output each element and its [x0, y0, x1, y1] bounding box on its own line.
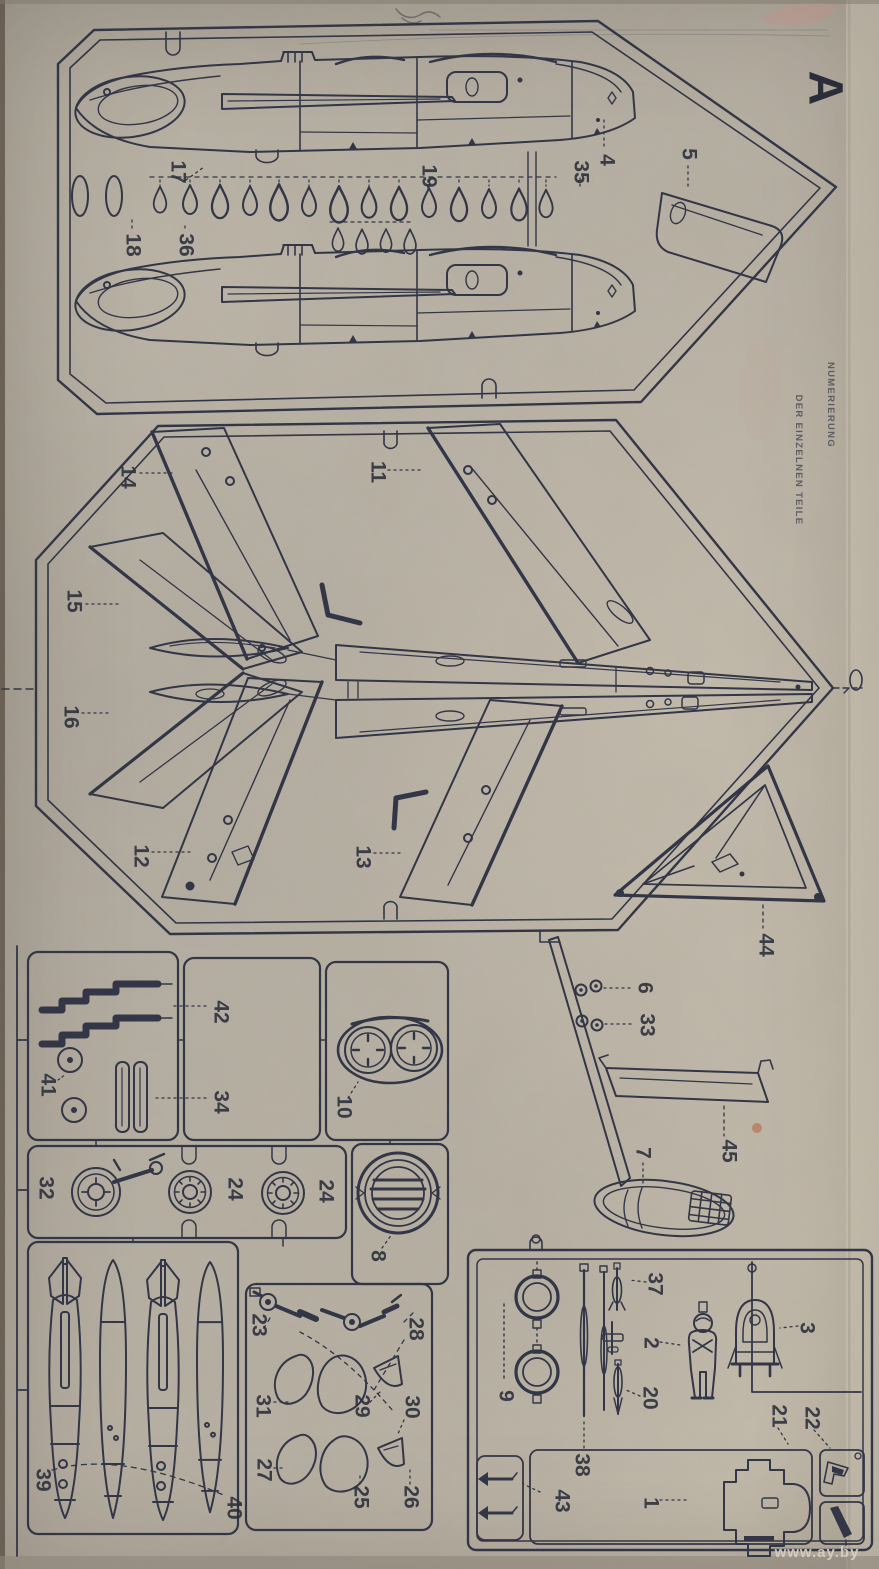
bottom-edge-shadow — [0, 1556, 879, 1569]
part-label-24-23: 24 — [223, 1177, 246, 1201]
part-label-42-18: 42 — [209, 1000, 232, 1023]
part-label-13-12: 13 — [351, 845, 374, 868]
part-label-33-15: 33 — [635, 1013, 658, 1036]
part-label-34-19: 34 — [209, 1090, 232, 1114]
faint-stain — [740, 340, 780, 440]
sheet-letter: A — [798, 71, 851, 106]
part-label-31-30: 31 — [251, 1394, 274, 1418]
part-label-26-35: 26 — [399, 1485, 422, 1508]
rust-stain — [752, 1123, 762, 1133]
part-label-19-1: 19 — [417, 164, 440, 187]
part-label-38-43: 38 — [570, 1453, 593, 1477]
part-label-27-33: 27 — [252, 1458, 275, 1481]
part-label-4-3: 4 — [595, 154, 618, 166]
part-label-6-14: 6 — [633, 982, 656, 994]
part-label-16-10: 16 — [59, 705, 82, 728]
left-edge-shadow — [0, 0, 5, 1569]
caption-line-2: DER EINZELNEN TEILE — [793, 395, 804, 526]
part-label-24-24: 24 — [314, 1179, 337, 1203]
part-label-5-6: 5 — [677, 148, 700, 160]
part-label-37-37: 37 — [643, 1272, 666, 1295]
part-label-7-17: 7 — [631, 1147, 654, 1159]
part-label-2-38: 2 — [639, 1337, 662, 1349]
scanned-instruction-sheet: A NUMERIERUNG DER EINZELNEN TEILE www.ay… — [0, 0, 879, 1569]
part-label-29-31: 29 — [350, 1394, 373, 1417]
caption-line-1: NUMERIERUNG — [825, 362, 836, 448]
part-label-15-9: 15 — [62, 589, 85, 613]
part-label-9-36: 9 — [494, 1390, 517, 1402]
part-label-3-40: 3 — [795, 1322, 818, 1334]
part-label-22-42: 22 — [800, 1406, 823, 1429]
part-label-41-20: 41 — [36, 1073, 59, 1097]
part-label-14-7: 14 — [116, 465, 139, 489]
part-label-44-13: 44 — [754, 933, 777, 957]
part-label-25-34: 25 — [349, 1485, 372, 1509]
part-label-8-25: 8 — [366, 1250, 389, 1262]
part-label-36-4: 36 — [174, 233, 197, 256]
part-label-1-45: 1 — [639, 1497, 662, 1509]
part-label-28-29: 28 — [404, 1317, 427, 1341]
part-label-10-21: 10 — [332, 1095, 355, 1118]
sprue-diagram: A NUMERIERUNG DER EINZELNEN TEILE www.ay… — [0, 0, 879, 1569]
part-label-23-28: 23 — [247, 1313, 270, 1336]
part-label-35-2: 35 — [569, 160, 592, 184]
part-label-45-16: 45 — [717, 1139, 740, 1163]
part-label-40-27: 40 — [222, 1496, 245, 1519]
part-label-32-22: 32 — [34, 1176, 57, 1199]
part-label-11-8: 11 — [366, 461, 389, 484]
part-label-20-39: 20 — [638, 1386, 661, 1409]
top-edge-shadow — [0, 0, 879, 4]
part-label-17-0: 17 — [166, 160, 189, 183]
part-label-39-26: 39 — [31, 1468, 54, 1491]
part-label-12-11: 12 — [129, 844, 152, 867]
part-label-18-5: 18 — [121, 233, 144, 257]
watermark-text: www.ay.by — [774, 1544, 860, 1561]
part-label-30-32: 30 — [400, 1395, 423, 1418]
part-label-21-41: 21 — [767, 1404, 790, 1428]
part-label-43-44: 43 — [550, 1489, 573, 1512]
paper-crease — [848, 0, 851, 1569]
